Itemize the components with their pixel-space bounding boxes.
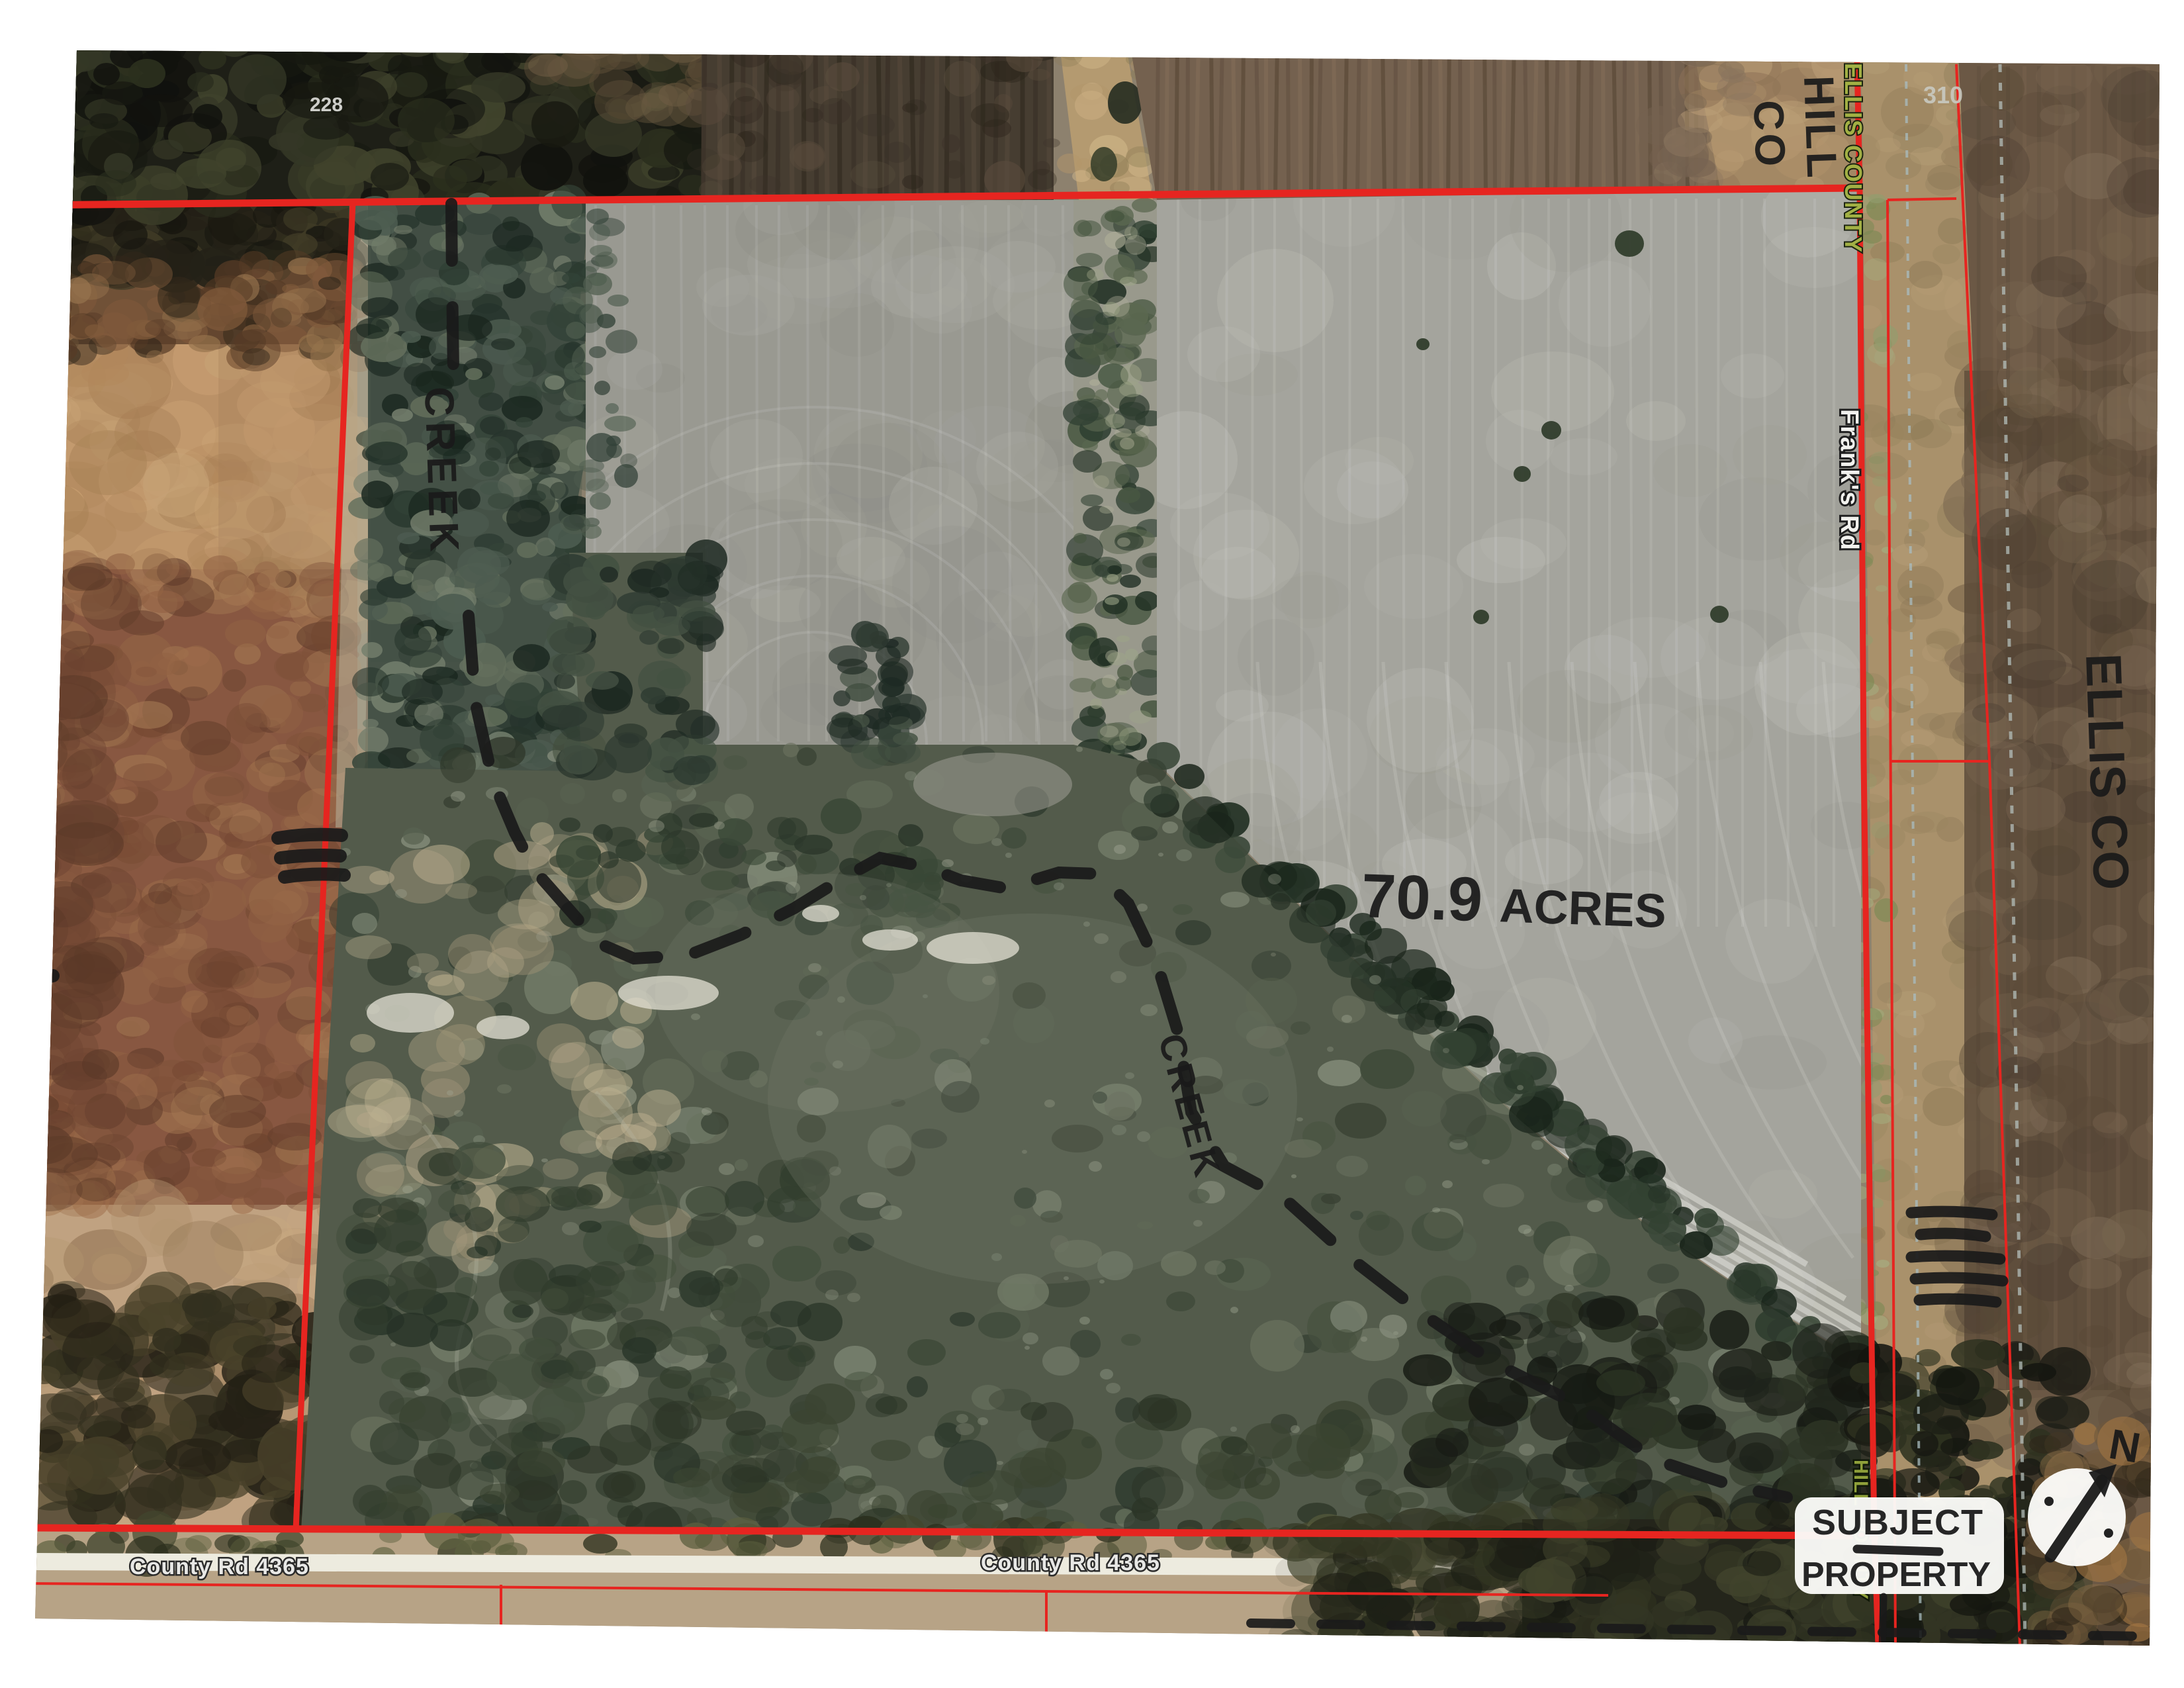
svg-text:CO: CO <box>1745 99 1795 169</box>
svg-text:310: 310 <box>1923 81 1963 109</box>
svg-text:ELLIS CO: ELLIS CO <box>2075 653 2139 892</box>
svg-text:County Rd 4365: County Rd 4365 <box>130 1554 309 1579</box>
svg-text:County Rd 4365: County Rd 4365 <box>981 1550 1160 1575</box>
svg-text:228: 228 <box>310 94 343 116</box>
svg-text:HILL: HILL <box>1795 75 1846 181</box>
svg-text:PROPERTY: PROPERTY <box>1801 1556 1991 1594</box>
svg-text:Frank's Rd: Frank's Rd <box>1835 409 1863 551</box>
svg-text:CREEK: CREEK <box>416 386 467 557</box>
svg-text:SUBJECT: SUBJECT <box>1812 1503 1983 1542</box>
